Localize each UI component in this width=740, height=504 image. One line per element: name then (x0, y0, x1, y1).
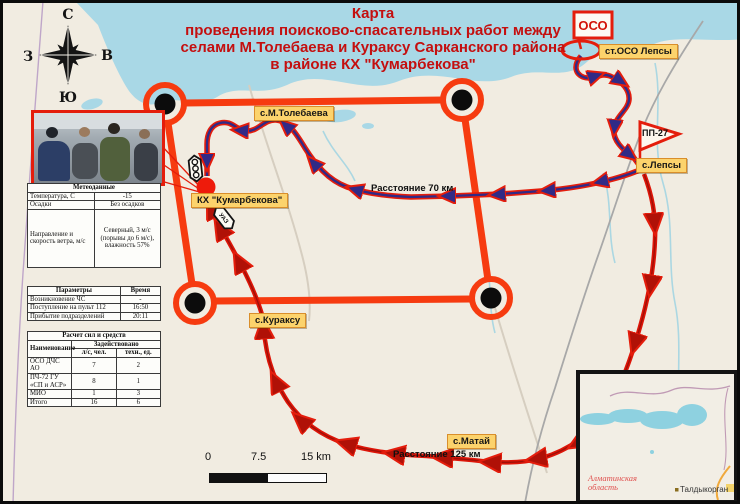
timeline-col-params: Параметры (28, 287, 121, 296)
map-title: Карта проведения поисково-спасательных р… (73, 5, 673, 73)
weather-table: Метеоданные Температура, С -15 Осадки Бе… (27, 183, 161, 268)
roads (249, 85, 547, 473)
photo-figure (72, 143, 98, 179)
photo-head (46, 127, 58, 138)
inset-region-line: область (588, 483, 637, 492)
weather-table-header: Метеоданные (28, 184, 161, 193)
photo-figure (134, 143, 158, 181)
photo-figure-camo (100, 137, 130, 181)
forces-row-name: ОСО ДЧС АО (28, 357, 72, 373)
forces-row-equipment: 3 (116, 390, 160, 399)
scale-start-label: 0 (205, 451, 211, 463)
weather-row-value: Северный, 3 м/с (порывы до 6 м/с), влажн… (94, 209, 161, 267)
timeline-row-label: Прибытие подразделений (28, 312, 121, 321)
inset-city-label: Талдыкорган (680, 485, 728, 494)
timeline-row-value: - (120, 295, 160, 304)
compass-west-label: З (23, 49, 33, 65)
photo-figure (38, 141, 70, 181)
forces-row-equipment: 2 (116, 357, 160, 373)
weather-row-label: Направление и скорость ветра, м/с (28, 209, 95, 267)
timeline-table: Параметры Время Возникновение ЧС - Посту… (27, 286, 161, 321)
forces-row-name: МИО (28, 390, 72, 399)
pp27-flag-label: ПП-27 (642, 128, 668, 138)
photo-head (108, 123, 120, 134)
forces-sub-equipment: техн., ед. (116, 349, 160, 358)
forces-row-personnel: 7 (72, 357, 116, 373)
weather-row-value: Без осадков (94, 201, 161, 210)
label-kumarbekova: КХ "Кумарбекова" (191, 193, 288, 208)
forces-row-equipment: 1 (116, 374, 160, 390)
inset-lake (580, 404, 707, 454)
scale-mid-label: 7.5 (251, 451, 266, 463)
map-title-line: Карта (73, 5, 673, 22)
timeline-row-value: 20:11 (120, 312, 160, 321)
label-lepsy: с.Лепсы (636, 158, 687, 173)
forces-row-name: Итого (28, 398, 72, 407)
photo-head (79, 127, 90, 137)
map-title-line: селами М.Толебаева и Кураксу Сарканского… (73, 39, 673, 56)
scale-end-label: 15 km (301, 451, 331, 463)
forces-sub-personnel: л/с, чел. (72, 349, 116, 358)
timeline-row-value: 16:50 (120, 304, 160, 313)
inset-city-marker (675, 488, 679, 492)
forces-row-personnel: 16 (72, 398, 116, 407)
scale-bar: 0 7.5 15 km (203, 451, 343, 485)
compass-north-label: С (62, 7, 73, 23)
rescued-people-photo (31, 110, 165, 186)
forces-table: Расчет сил и средств Наименование Задейс… (27, 331, 161, 407)
weather-row-label: Температура, С (28, 192, 95, 201)
compass-south-label: Ю (59, 90, 77, 106)
forces-row-personnel: 8 (72, 374, 116, 390)
scale-track (209, 473, 327, 483)
forces-name-col: Наименование (28, 340, 72, 357)
region-inset-map: Алматинская область Талдыкорган (576, 370, 738, 504)
route-70km-arrows (207, 74, 634, 196)
inset-boundary (610, 386, 730, 396)
timeline-row-label: Возникновение ЧС (28, 295, 121, 304)
inset-region-label: Алматинская область (588, 474, 637, 492)
photo-head (139, 129, 150, 139)
distance-70km: Расстояние 70 км (371, 183, 453, 194)
vehicle-badge-icon (188, 155, 203, 182)
distance-125km: Расстояние 125 км (393, 449, 481, 460)
forces-table-header: Расчет сил и средств (28, 332, 161, 341)
inset-boundary (724, 388, 728, 470)
rescue-operations-map: УАЗ ОСО ПП-27 С Ю З В Карта пр (0, 0, 740, 504)
scale-track-white (268, 474, 326, 482)
label-kuraksu: с.Кураксу (249, 313, 306, 328)
timeline-col-time: Время (120, 287, 160, 296)
forces-row-personnel: 1 (72, 390, 116, 399)
label-matay: с.Матай (447, 434, 496, 449)
scale-track-black (210, 474, 268, 482)
timeline-row-label: Поступление на пульт 112 (28, 304, 121, 313)
forces-involved-col: Задействовано (72, 340, 161, 349)
weather-row-label: Осадки (28, 201, 95, 210)
pond-small (362, 123, 374, 129)
label-tolebaeva: с.М.Толебаева (254, 106, 334, 121)
forces-row-name: ПЧ-72 ГУ «СП и АСР» (28, 374, 72, 390)
inset-road (717, 466, 730, 500)
map-title-line: в районе КХ "Кумарбекова" (73, 56, 673, 73)
map-title-line: проведения поисково-спасательных работ м… (73, 22, 673, 39)
weather-row-value: -15 (94, 192, 161, 201)
forces-row-equipment: 6 (116, 398, 160, 407)
